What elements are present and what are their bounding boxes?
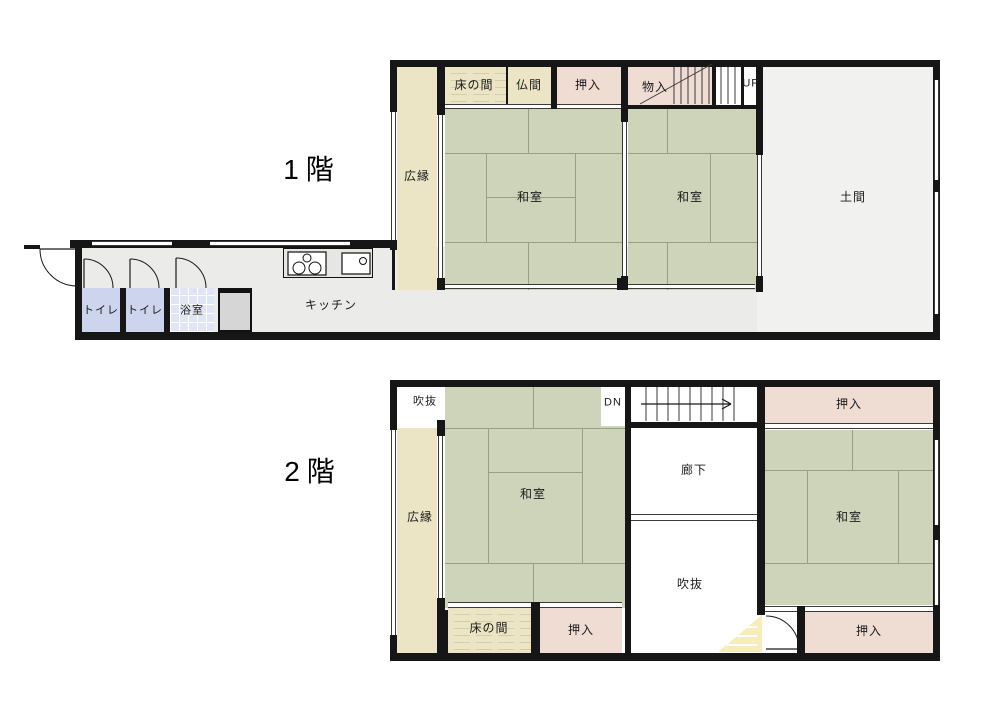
void-railing-opening (631, 514, 757, 521)
wall (392, 653, 940, 661)
room-label-tokonoma-f1: 床の間 (454, 79, 493, 91)
wall (390, 60, 397, 112)
tatami-line (898, 470, 899, 563)
kitchen-counter (283, 248, 373, 278)
tatami-line (710, 153, 711, 242)
sliding-door-opening (757, 155, 762, 276)
tatami-line (445, 153, 622, 154)
wall (75, 248, 82, 332)
wall (756, 60, 763, 155)
window-opening (391, 430, 396, 635)
water-heater-box (218, 288, 252, 332)
sliding-door-opening (438, 436, 443, 598)
wall (392, 380, 940, 387)
wall (390, 635, 397, 661)
wall (390, 380, 397, 430)
room-label-hiroen-f1: 広縁 (404, 170, 430, 182)
window-opening (934, 540, 939, 605)
wall (390, 240, 397, 250)
wall (621, 108, 628, 122)
room-label-tokonoma-f2: 床の間 (469, 622, 508, 634)
stairs-down-label: DN (604, 398, 622, 409)
wall (437, 278, 445, 290)
wall (437, 610, 448, 653)
floorplan-canvas: 1階 広縁 床の間 仏間 押入 物入 UP 和室 和室 土間 トイレ トイレ 浴… (0, 0, 1006, 709)
room-label-doma: 土間 (840, 191, 866, 203)
wall (437, 598, 445, 610)
entrance-door-swing-arc (40, 249, 77, 286)
wall (712, 67, 716, 108)
sliding-door-opening (622, 122, 627, 276)
window-opening (391, 112, 396, 240)
room-label-bathroom: 浴室 (180, 306, 204, 317)
window-opening (934, 440, 939, 525)
tatami-line (765, 470, 933, 471)
sliding-door-opening (765, 606, 933, 612)
room-label-kitchen: キッチン (305, 299, 357, 311)
tatami-line (807, 470, 808, 563)
room-label-fukinuke-top: 吹抜 (413, 397, 437, 408)
room-label-washitsu-left-f1: 和室 (517, 191, 543, 203)
sliding-door-opening (628, 284, 755, 289)
floor1-title: 1階 (283, 148, 341, 188)
wall (617, 278, 628, 290)
void-highlight-lines (727, 627, 757, 645)
tatami-line (533, 563, 534, 605)
tatami-line (628, 153, 757, 154)
window-opening (934, 80, 939, 180)
stairs-down-area (631, 387, 757, 422)
wall (437, 420, 445, 436)
sliding-door-opening (445, 104, 621, 109)
monoire-stairs (628, 67, 712, 108)
sliding-door-opening (438, 115, 443, 278)
tatami-line (528, 242, 529, 290)
room-label-oshiire-top-right: 押入 (836, 398, 862, 410)
tatami-line (445, 242, 622, 243)
tatami-line (488, 472, 582, 473)
tatami-line (528, 108, 529, 153)
room-label-butsuma: 仏間 (516, 79, 542, 91)
tatami-line (628, 242, 757, 243)
wall (551, 67, 557, 108)
room-label-hiroen-f2: 広縁 (407, 511, 433, 523)
room-label-toilet-2: トイレ (127, 306, 163, 317)
tatami-line (667, 242, 668, 290)
wall (75, 332, 940, 340)
wall (621, 67, 628, 108)
f2-door-swing-arc (766, 616, 799, 649)
wall (392, 250, 395, 290)
room-label-washitsu-left-f2: 和室 (520, 488, 546, 500)
tatami-line (582, 428, 583, 563)
tatami-line (445, 563, 625, 564)
wall (757, 387, 765, 615)
tatami-line (445, 428, 625, 429)
wall (437, 60, 445, 115)
void-highlight-triangle (718, 615, 762, 652)
room-label-oshiire-bottom-right: 押入 (856, 625, 882, 637)
window-opening (934, 192, 939, 314)
wall (551, 104, 557, 109)
wall (631, 422, 757, 428)
room-label-oshiire-f1: 押入 (575, 79, 601, 91)
floor2-title: 2階 (284, 450, 342, 490)
wall (531, 602, 540, 653)
tatami-line (533, 387, 534, 428)
tatami-line (488, 428, 489, 563)
wall (756, 276, 763, 292)
veranda-f2 (397, 428, 437, 653)
room-label-washitsu-right-f2: 和室 (836, 511, 862, 523)
room-label-oshiire-bottom-left: 押入 (568, 624, 594, 636)
wall (506, 67, 508, 108)
wall (392, 60, 940, 67)
room-label-fukinuke-center: 吹抜 (677, 578, 703, 590)
window-opening (210, 241, 350, 246)
wall (628, 105, 756, 109)
room-label-monoire: 物入 (642, 81, 668, 93)
sliding-door-opening (445, 284, 617, 289)
tatami-line (765, 563, 933, 564)
wall (797, 606, 805, 653)
tatami-line (852, 430, 853, 470)
room-label-washitsu-right-f1: 和室 (677, 191, 703, 203)
room-label-toilet-1: トイレ (83, 306, 119, 317)
sliding-door-opening (765, 423, 933, 429)
stairs-up-label: UP (742, 79, 759, 90)
room-label-rouka: 廊下 (681, 464, 707, 476)
tatami-line (667, 108, 668, 153)
window-opening (92, 241, 172, 246)
stairs-up-area (716, 67, 742, 108)
tatami-line (575, 153, 576, 242)
